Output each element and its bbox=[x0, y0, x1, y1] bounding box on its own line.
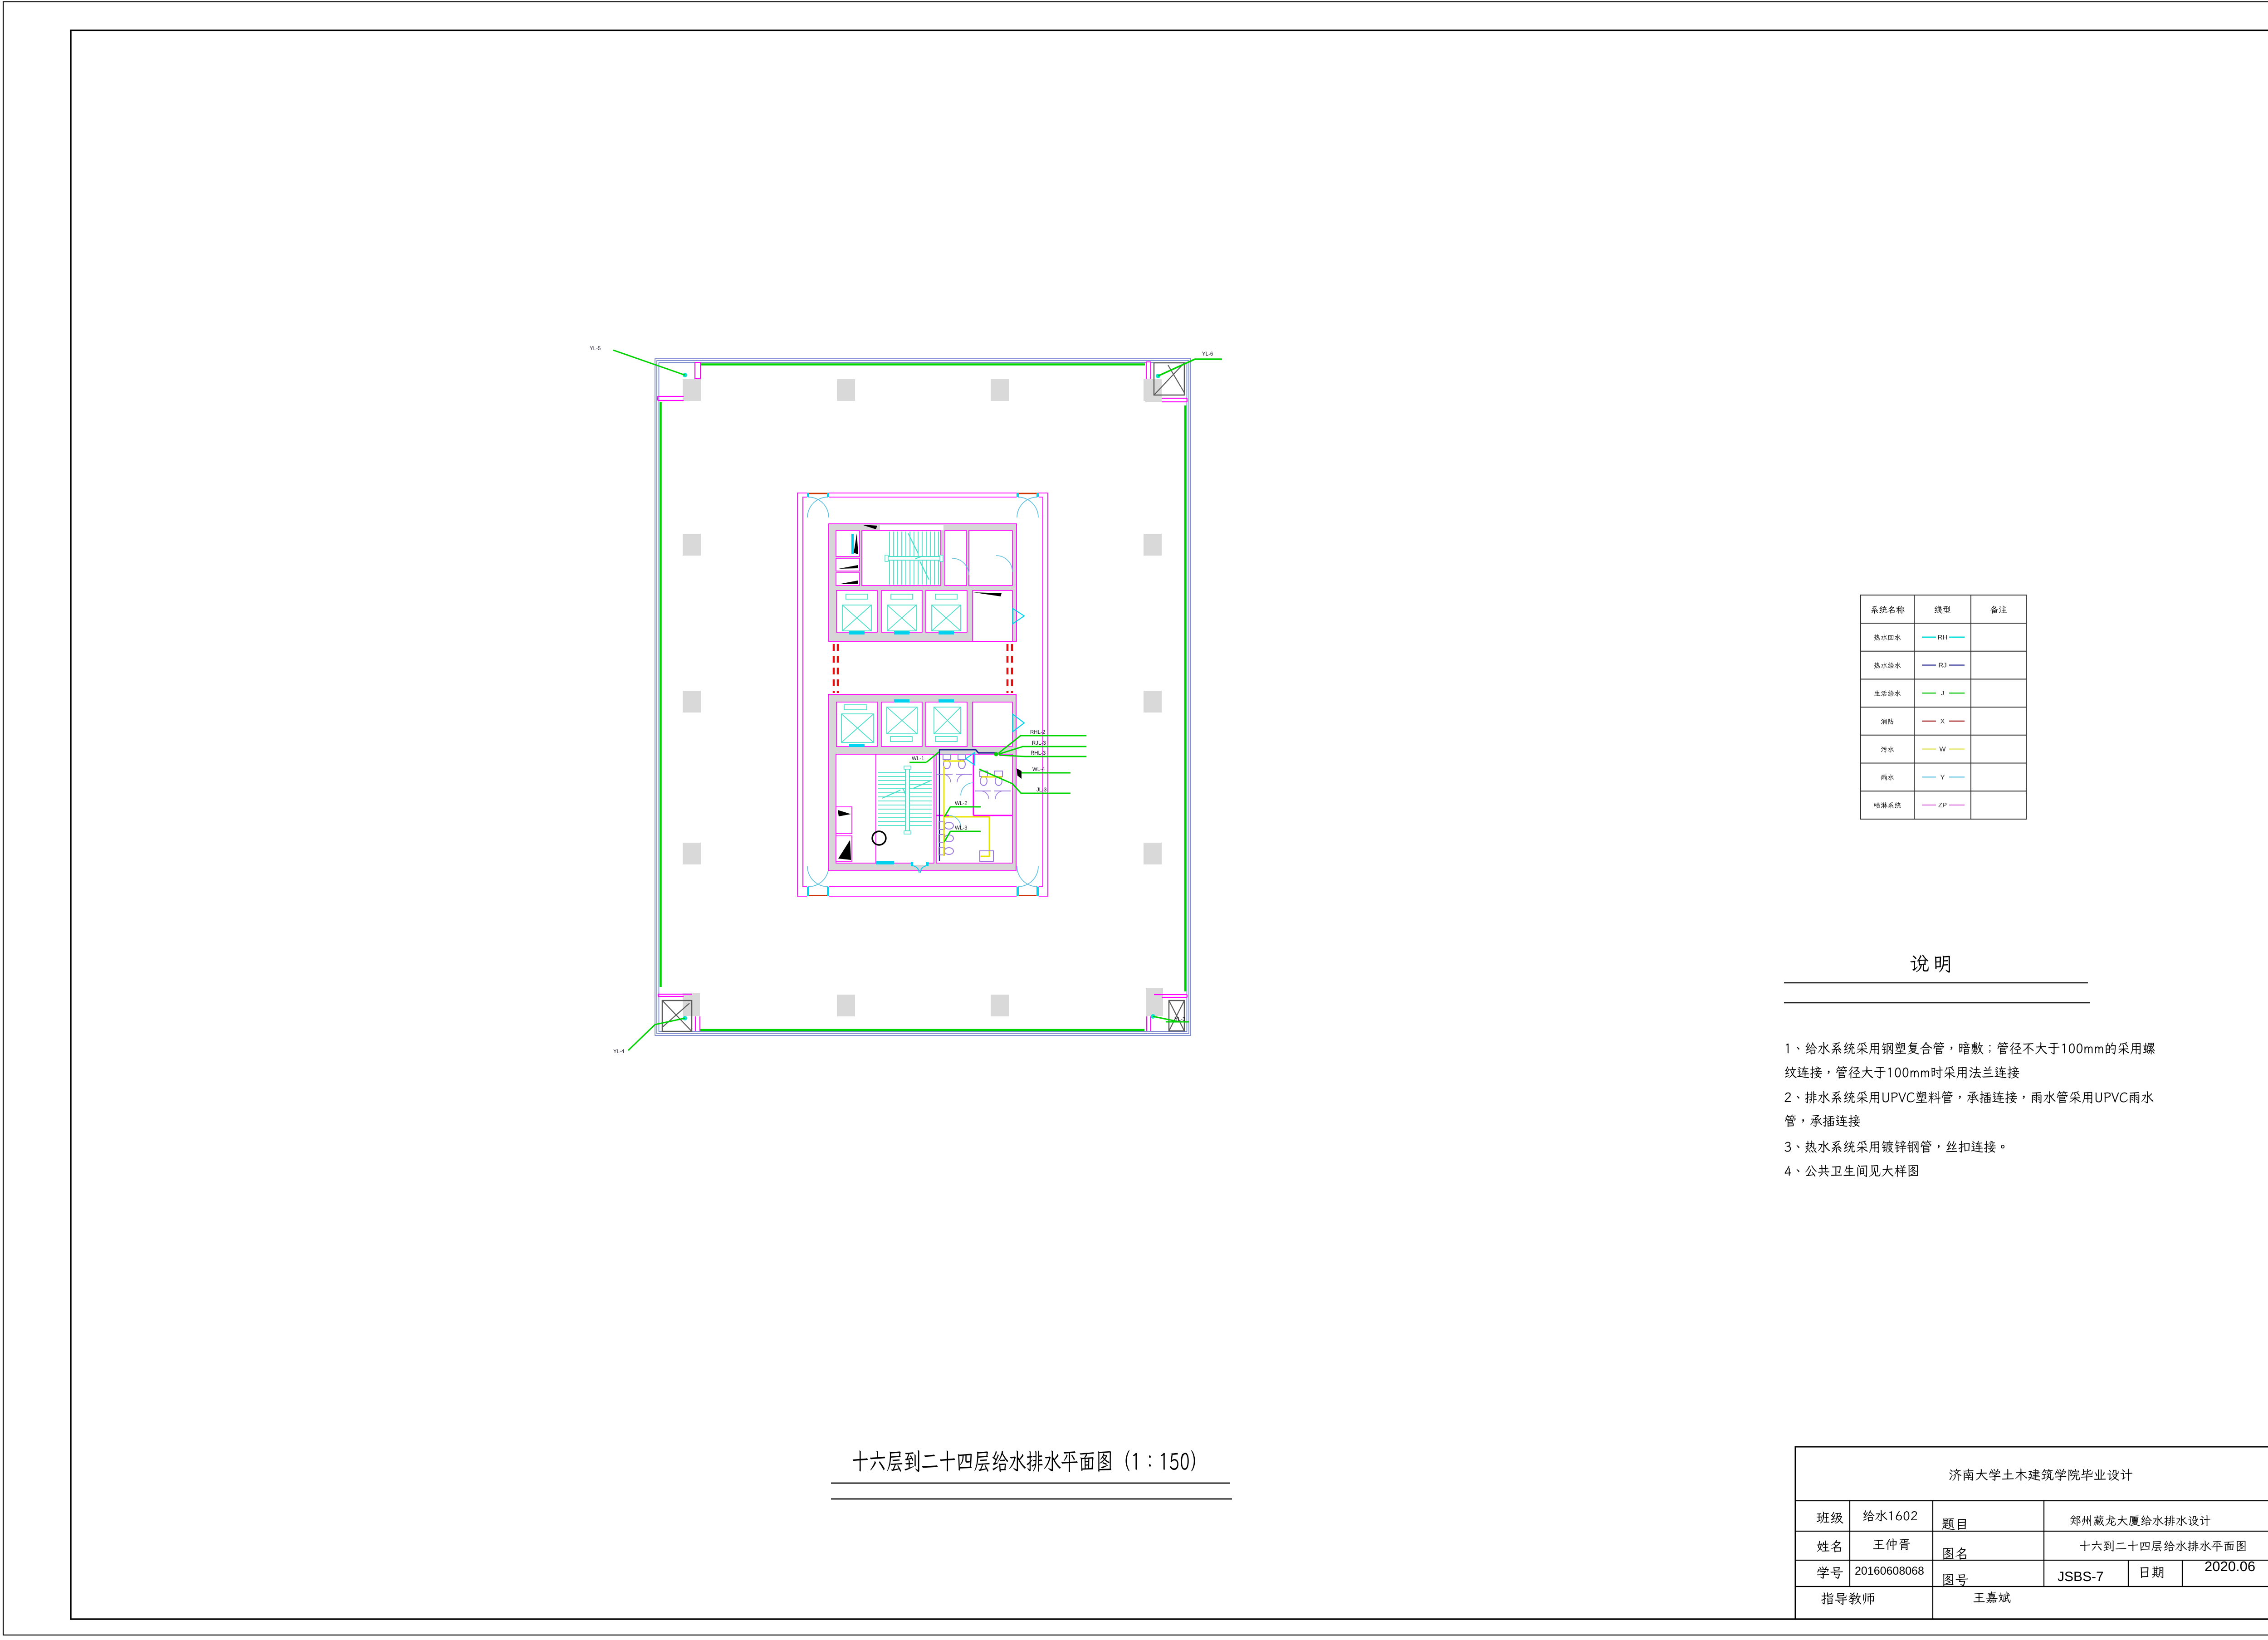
svg-text:WL-4: WL-4 bbox=[1032, 767, 1045, 772]
svg-text:RHL-2: RHL-2 bbox=[1030, 730, 1045, 735]
svg-text:JL-3: JL-3 bbox=[1036, 787, 1046, 793]
svg-text:X: X bbox=[1940, 717, 1945, 725]
svg-text:WL-2: WL-2 bbox=[955, 801, 967, 806]
svg-text:RH: RH bbox=[1938, 634, 1948, 641]
svg-text:JSBS-7: JSBS-7 bbox=[2058, 1569, 2104, 1584]
svg-text:WL-1: WL-1 bbox=[912, 756, 924, 761]
svg-text:Y: Y bbox=[1940, 773, 1945, 781]
svg-text:W: W bbox=[1939, 746, 1946, 753]
svg-text:YL-6: YL-6 bbox=[1202, 351, 1213, 357]
svg-text:RHL-3: RHL-3 bbox=[1031, 751, 1046, 756]
svg-text:RJ: RJ bbox=[1938, 662, 1946, 669]
svg-text:ZP: ZP bbox=[1938, 801, 1947, 809]
svg-text:YL-4: YL-4 bbox=[613, 1049, 625, 1054]
svg-text:J: J bbox=[1941, 689, 1945, 697]
svg-text:2020.06: 2020.06 bbox=[2204, 1558, 2255, 1574]
svg-text:RJL-3: RJL-3 bbox=[1032, 741, 1046, 746]
svg-text:YL-3: YL-3 bbox=[1174, 1017, 1185, 1022]
svg-text:20160608068: 20160608068 bbox=[1855, 1565, 1924, 1577]
svg-text:WL-3: WL-3 bbox=[955, 825, 967, 831]
svg-text:YL-5: YL-5 bbox=[590, 346, 601, 351]
